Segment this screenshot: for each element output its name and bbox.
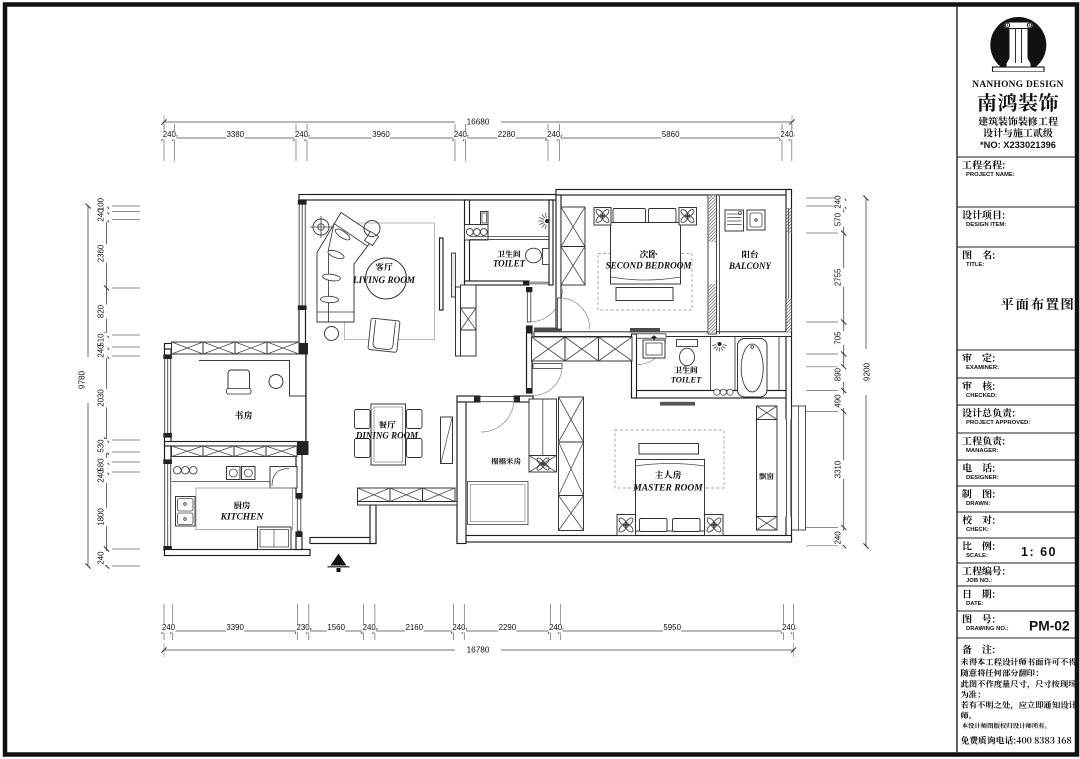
svg-text:*NO: X233021396: *NO: X233021396 <box>980 140 1056 150</box>
svg-text:LIVING ROOM: LIVING ROOM <box>352 275 416 285</box>
svg-text:工程编号:: 工程编号: <box>961 563 1005 578</box>
svg-text:KITCHEN: KITCHEN <box>220 513 265 523</box>
svg-text:TOILET: TOILET <box>671 375 702 385</box>
svg-text:工程负责:: 工程负责: <box>961 433 1005 448</box>
svg-text:5950: 5950 <box>663 623 681 632</box>
svg-text:1: 60: 1: 60 <box>1021 545 1057 559</box>
svg-text:240: 240 <box>454 130 468 139</box>
svg-text:240: 240 <box>547 130 561 139</box>
svg-text:图 号:: 图 号: <box>962 611 995 626</box>
svg-text:820: 820 <box>96 304 105 318</box>
svg-text:EXAMINER:: EXAMINER: <box>966 365 999 371</box>
svg-text:备 注:: 备 注: <box>962 641 995 656</box>
svg-text:客厅: 客厅 <box>375 261 393 273</box>
svg-text:2160: 2160 <box>406 623 424 632</box>
svg-text:2755: 2755 <box>834 268 843 286</box>
svg-text:南鸿装饰: 南鸿装饰 <box>977 87 1059 116</box>
svg-text:TOILET: TOILET <box>493 259 526 269</box>
svg-text:CHECKED:: CHECKED: <box>966 393 997 399</box>
svg-text:240: 240 <box>549 623 563 632</box>
svg-text:书房: 书房 <box>234 409 252 422</box>
svg-text:240: 240 <box>363 623 377 632</box>
svg-text:9780: 9780 <box>78 370 87 389</box>
svg-text:DESIGNER:: DESIGNER: <box>966 475 999 481</box>
svg-text:240: 240 <box>96 344 105 358</box>
svg-text:审 核:: 审 核: <box>962 378 995 393</box>
svg-text:240: 240 <box>96 469 105 483</box>
svg-text:设计项目:: 设计项目: <box>962 207 1005 222</box>
svg-text:飘窗: 飘窗 <box>759 471 774 482</box>
svg-text:工程名程:: 工程名程: <box>961 157 1005 172</box>
svg-text:240: 240 <box>96 208 105 222</box>
svg-text:MASTER ROOM: MASTER ROOM <box>632 484 703 494</box>
svg-text:图 名:: 图 名: <box>962 247 995 262</box>
svg-text:2360: 2360 <box>96 244 105 262</box>
svg-text:MANAGER:: MANAGER: <box>966 448 998 454</box>
svg-text:240: 240 <box>96 551 105 565</box>
svg-text:530: 530 <box>96 439 105 453</box>
svg-text:16780: 16780 <box>467 646 490 655</box>
svg-text:校 对:: 校 对: <box>962 512 995 527</box>
svg-text:阳台: 阳台 <box>741 249 758 261</box>
svg-text:1800: 1800 <box>96 508 105 526</box>
svg-text:TITLE:: TITLE: <box>966 262 984 268</box>
svg-text:厨房: 厨房 <box>233 500 251 512</box>
svg-text:日 期:: 日 期: <box>962 586 995 601</box>
svg-text:570: 570 <box>834 212 843 226</box>
svg-text:240: 240 <box>163 130 177 139</box>
svg-text:BALCONY: BALCONY <box>728 261 773 271</box>
svg-text:9200: 9200 <box>863 362 872 381</box>
svg-text:1560: 1560 <box>327 623 345 632</box>
svg-text:DINING ROOM: DINING ROOM <box>355 431 419 441</box>
svg-text:16680: 16680 <box>467 118 490 127</box>
svg-text:490: 490 <box>834 394 843 408</box>
svg-text:平面布置图: 平面布置图 <box>1001 293 1076 313</box>
svg-text:PROJECT NAME:: PROJECT NAME: <box>966 172 1015 178</box>
svg-text:电 话:: 电 话: <box>962 460 995 475</box>
svg-text:本设计师图版权归设计师所有。: 本设计师图版权归设计师所有。 <box>962 721 1051 730</box>
svg-text:师。: 师。 <box>961 710 978 722</box>
svg-text:SECOND BEDROOM: SECOND BEDROOM <box>605 261 692 271</box>
svg-text:705: 705 <box>834 331 843 345</box>
svg-text:2290: 2290 <box>499 623 517 632</box>
svg-text:DRAWING NO.:: DRAWING NO.: <box>966 626 1009 632</box>
svg-text:240: 240 <box>295 130 309 139</box>
svg-text:3380: 3380 <box>227 130 245 139</box>
svg-text:5860: 5860 <box>662 130 680 139</box>
svg-text:3310: 3310 <box>834 460 843 478</box>
svg-text:3960: 3960 <box>372 130 390 139</box>
svg-text:CHECK:: CHECK: <box>966 527 989 533</box>
svg-text:免费质询电话:400 8383 168: 免费质询电话:400 8383 168 <box>961 734 1072 747</box>
svg-text:2030: 2030 <box>96 389 105 407</box>
svg-text:设计总负责:: 设计总负责: <box>962 405 1015 420</box>
svg-text:榻榻米房: 榻榻米房 <box>491 456 521 467</box>
svg-text:审 定:: 审 定: <box>962 350 995 365</box>
svg-text:PROJECT APPROVED:: PROJECT APPROVED: <box>966 420 1030 426</box>
svg-text:230: 230 <box>297 623 311 632</box>
svg-text:次卧: 次卧 <box>639 248 657 261</box>
svg-text:主人房: 主人房 <box>654 468 681 481</box>
svg-text:240: 240 <box>162 623 176 632</box>
svg-text:240: 240 <box>834 531 843 545</box>
svg-text:240: 240 <box>782 623 796 632</box>
svg-text:比 例:: 比 例: <box>962 538 995 553</box>
svg-text:制 图:: 制 图: <box>962 486 995 501</box>
svg-text:DESIGN ITEM:: DESIGN ITEM: <box>966 222 1006 228</box>
svg-text:3390: 3390 <box>226 623 244 632</box>
svg-text:DATE:: DATE: <box>966 601 984 607</box>
svg-text:DRAWN:: DRAWN: <box>966 501 990 507</box>
svg-text:2280: 2280 <box>498 130 516 139</box>
svg-text:240: 240 <box>452 623 466 632</box>
svg-text:240: 240 <box>834 195 843 209</box>
svg-text:PM-02: PM-02 <box>1029 619 1070 634</box>
svg-text:餐厅: 餐厅 <box>378 419 396 431</box>
svg-text:SCALE:: SCALE: <box>966 553 988 559</box>
svg-text:890: 890 <box>834 368 843 382</box>
svg-text:240: 240 <box>780 130 794 139</box>
svg-text:设计与施工贰级: 设计与施工贰级 <box>983 125 1054 140</box>
svg-text:JOB NO.:: JOB NO.: <box>966 578 992 584</box>
